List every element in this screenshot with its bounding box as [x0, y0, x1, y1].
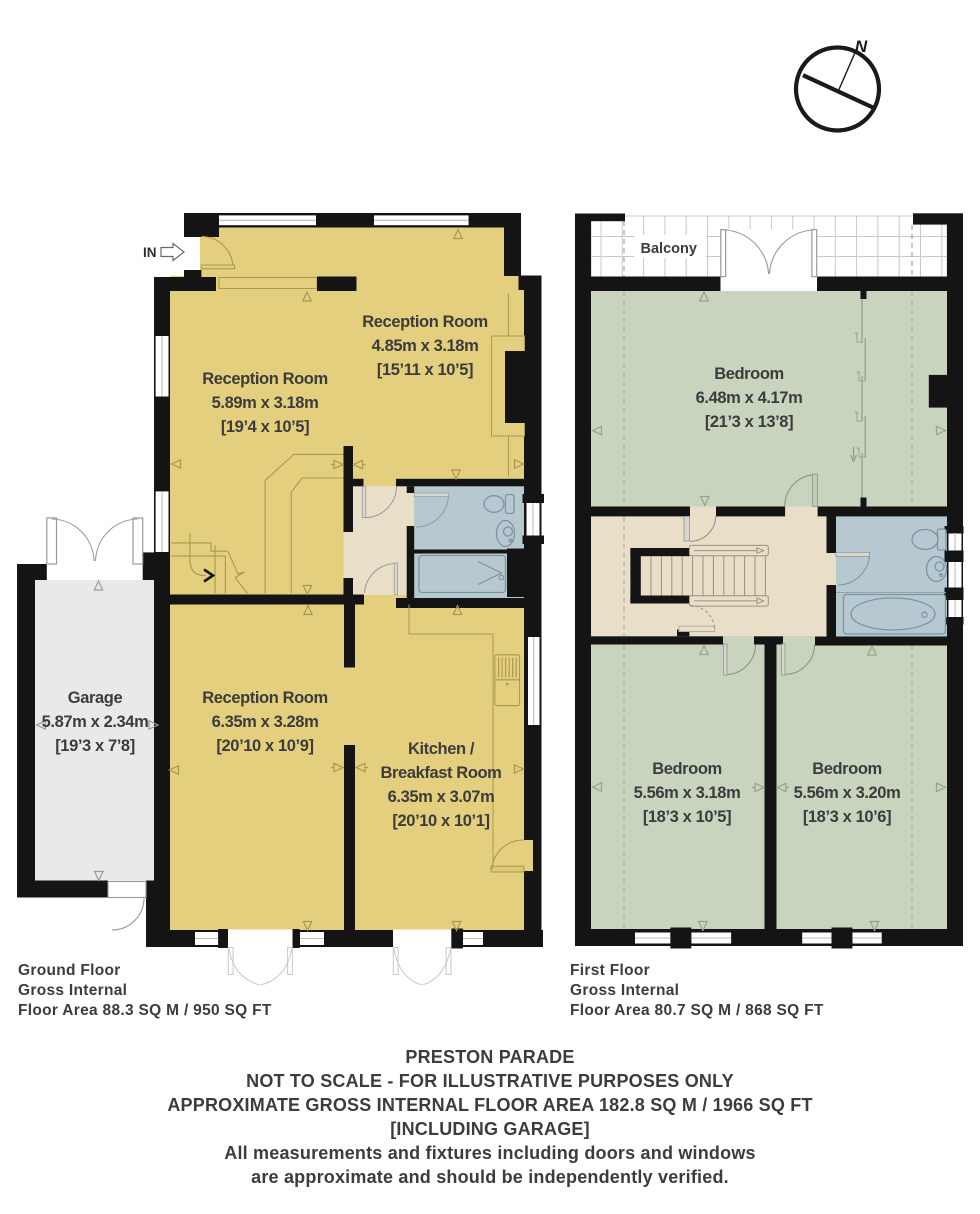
svg-text:[19’4 x 10’5]: [19’4 x 10’5]: [221, 418, 309, 436]
svg-text:6.35m x 3.28m: 6.35m x 3.28m: [212, 713, 319, 731]
svg-text:Reception Room: Reception Room: [202, 370, 328, 388]
svg-text:All measurements and fixtures: All measurements and fixtures including …: [224, 1143, 755, 1163]
svg-text:Bedroom: Bedroom: [652, 760, 722, 778]
svg-text:5.87m x 2.34m: 5.87m x 2.34m: [42, 713, 149, 731]
svg-text:5.89m x 3.18m: 5.89m x 3.18m: [212, 394, 319, 412]
svg-text:Floor Area 80.7 SQ M / 868 SQ: Floor Area 80.7 SQ M / 868 SQ FT: [570, 1002, 824, 1019]
svg-text:Kitchen /: Kitchen /: [408, 740, 475, 758]
svg-text:Bedroom: Bedroom: [714, 365, 784, 383]
svg-text:5.56m x 3.18m: 5.56m x 3.18m: [634, 784, 741, 802]
svg-text:Reception Room: Reception Room: [202, 689, 328, 707]
svg-text:First Floor: First Floor: [570, 962, 650, 979]
svg-text:[15’11 x 10’5]: [15’11 x 10’5]: [377, 361, 473, 379]
svg-text:PRESTON PARADE: PRESTON PARADE: [405, 1047, 574, 1067]
svg-text:Breakfast Room: Breakfast Room: [381, 764, 502, 782]
svg-text:[20’10 x 10’9]: [20’10 x 10’9]: [216, 737, 313, 755]
svg-text:NOT TO SCALE - FOR ILLUSTRATIV: NOT TO SCALE - FOR ILLUSTRATIVE PURPOSES…: [246, 1071, 734, 1091]
svg-text:4.85m x 3.18m: 4.85m x 3.18m: [372, 337, 479, 355]
svg-text:6.48m x 4.17m: 6.48m x 4.17m: [696, 389, 803, 407]
svg-text:[18’3 x 10’5]: [18’3 x 10’5]: [643, 808, 731, 826]
svg-text:are approximate and should be: are approximate and should be independen…: [251, 1167, 729, 1187]
svg-text:N: N: [855, 37, 868, 56]
svg-text:[19’3 x 7’8]: [19’3 x 7’8]: [55, 737, 135, 755]
svg-text:Balcony: Balcony: [641, 241, 697, 257]
svg-text:Ground Floor: Ground Floor: [18, 962, 121, 979]
svg-text:5.56m x 3.20m: 5.56m x 3.20m: [794, 784, 901, 802]
svg-text:6.35m x 3.07m: 6.35m x 3.07m: [388, 788, 495, 806]
svg-text:APPROXIMATE GROSS INTERNAL FLO: APPROXIMATE GROSS INTERNAL FLOOR AREA 18…: [167, 1095, 812, 1115]
svg-text:Gross Internal: Gross Internal: [570, 982, 679, 999]
svg-text:Reception Room: Reception Room: [362, 313, 488, 331]
svg-text:[21’3 x 13’8]: [21’3 x 13’8]: [705, 413, 793, 431]
svg-text:[20’10 x 10’1]: [20’10 x 10’1]: [392, 812, 489, 830]
svg-text:Bedroom: Bedroom: [812, 760, 882, 778]
svg-text:Gross Internal: Gross Internal: [18, 982, 127, 999]
svg-text:Floor Area 88.3 SQ M / 950 SQ: Floor Area 88.3 SQ M / 950 SQ FT: [18, 1002, 272, 1019]
svg-text:Garage: Garage: [68, 689, 123, 707]
svg-text:[18’3 x 10’6]: [18’3 x 10’6]: [803, 808, 891, 826]
svg-text:IN: IN: [143, 245, 157, 260]
svg-text:[INCLUDING GARAGE]: [INCLUDING GARAGE]: [390, 1119, 590, 1139]
